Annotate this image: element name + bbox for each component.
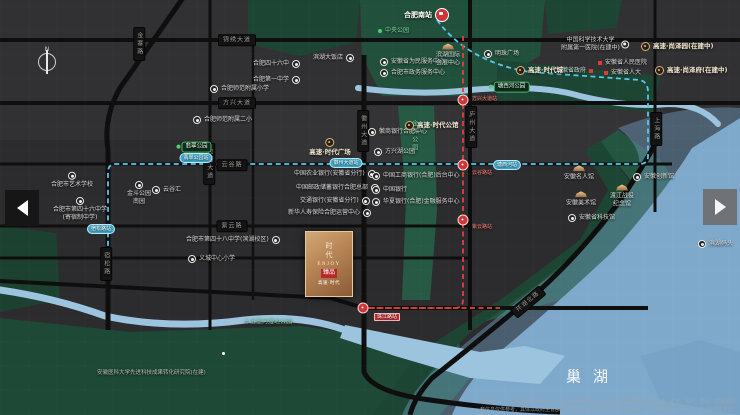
park-label: 中央公园: [378, 27, 409, 35]
road-name-plate: 云谷路: [216, 159, 247, 171]
right-arrow-icon: [715, 199, 726, 215]
poi-label: 中国邮政储蓄银行合肥总部: [296, 184, 379, 192]
poi-label: 安徽创新馆: [633, 173, 674, 181]
logo-latin-text: ENJOY: [317, 262, 340, 267]
road-name-plate: 上海路: [650, 112, 662, 146]
poi-label: 安徽省人大: [604, 69, 641, 77]
park-badge: 塘西河公园: [489, 82, 530, 93]
metro-station-red: [458, 160, 469, 171]
poi-label: 云谷汇: [152, 186, 181, 194]
previous-arrow-button[interactable]: [5, 190, 39, 226]
poi-label: 中国科学技术大学附属第一医院(在建中): [561, 37, 629, 52]
metro-station-red: [458, 215, 469, 226]
location-map: 锦绣大道方兴大道云谷路紫云路金寨路包河大道宿松路徽州大道庐州大道上海路环湖北路合…: [0, 0, 740, 415]
poi-label: 方兴湖公园: [374, 148, 415, 156]
landmark-label: 渡江战役纪念馆: [610, 185, 634, 208]
metro-station-blue: 宿松路站: [87, 224, 115, 234]
landmark-label: 安徽美术馆: [566, 191, 596, 207]
poi-label: 中国银行: [372, 186, 407, 194]
metro-station-blue: 塘西河站: [493, 160, 521, 170]
metro-station-red: [458, 95, 469, 106]
poi-label: 合肥四十六中: [253, 60, 300, 68]
poi-label: 合肥市政务服务中心: [380, 69, 445, 77]
road-name-plate: 宿松路: [100, 247, 112, 281]
project-label: 高速·时代城: [516, 66, 563, 75]
metro-station-label: 云谷路站: [472, 170, 492, 176]
landmark-label: 安徽名人馆: [564, 165, 594, 181]
metro-station-label: 紫云路站: [472, 224, 492, 230]
poi-label: 中国农业银行(安徽省分行): [294, 170, 376, 178]
poi-label: 金斗公园南园: [127, 181, 151, 205]
poi-label: 合肥师范附属二小: [193, 116, 252, 124]
road-name-plate: 方兴大道: [218, 97, 256, 109]
logo-caption: 高速·时代: [318, 280, 340, 286]
project-label: 高速·尚泽府(在建中): [655, 66, 727, 75]
road-name-plate: 庐州大道: [465, 106, 477, 148]
poi-label: 新华人寿保险合肥运营中心: [288, 209, 371, 217]
project-label: 高速·时代广场: [309, 138, 350, 156]
poi-label: 合肥师范附属小学: [210, 85, 269, 93]
metro-station-blue: 翡翠公园站: [179, 153, 212, 163]
poi-label: 合肥市第四十六中学(寄宿制中学): [53, 197, 107, 221]
road-name-plate: 紫云路: [216, 220, 247, 232]
metro-station-red: [358, 303, 369, 314]
poi-label: 滨湖大饭店: [313, 54, 354, 62]
metro-station-blue: 徽州大道站: [329, 158, 362, 168]
rail-station-badge: 合肥南站: [404, 8, 449, 22]
logo-vertical-text: 时代: [324, 242, 334, 260]
park-badge: 翡翠公园: [176, 142, 211, 153]
road-name-plate: 锦绣大道: [218, 34, 256, 46]
poi-label: 安徽省人民医院: [598, 59, 647, 67]
poi-label: 交通银行(安徽省分行): [300, 197, 370, 205]
project-logo: 时代 ENJOY 臻品 高速·时代: [305, 231, 353, 297]
landmark-label: 滨湖国际会展中心: [436, 44, 460, 67]
logo-seal: 臻品: [321, 269, 337, 278]
poi-label: 安徽省科技馆: [568, 214, 615, 222]
metro-station-label: 方兴大道站: [472, 96, 497, 102]
left-arrow-icon: [17, 200, 28, 216]
poi-label: 华夏银行(合肥)金融服务中心: [372, 198, 460, 206]
next-arrow-button[interactable]: [703, 189, 737, 225]
poi-label: 明珠广场: [484, 50, 519, 58]
poi-dot: [222, 352, 225, 355]
poi-label: 合肥第一中学: [253, 76, 300, 84]
park-label: 十五里河湿地公园: [244, 318, 292, 326]
metro-station-label: 珠江路站: [374, 313, 400, 321]
compass-icon: N: [36, 46, 58, 76]
poi-label: 合肥市艺术学校: [51, 172, 93, 189]
disclaimer-text: 温馨提示：本宣传资料为要约邀请，不作为要约或承诺；图中距离数据源自地图软件，教育…: [480, 399, 736, 415]
poi-label: 滨湖码头: [698, 240, 733, 248]
project-label: 高速·时代公馆: [405, 121, 458, 130]
poi-label: 中国工商银行(合肥)后台中心: [372, 172, 460, 180]
road-name-plate: 金寨路: [133, 27, 145, 61]
poi-label: 合肥市第四十八中学(滨湖校区): [186, 236, 280, 244]
lake-label: 巢湖: [566, 368, 620, 387]
poi-label: 安徽医科大学先进科技成果转化研究院(在建): [97, 370, 206, 377]
project-label: 高速·尚泽园(在建中): [641, 42, 713, 51]
poi-label: 义城中心小学: [188, 255, 235, 263]
